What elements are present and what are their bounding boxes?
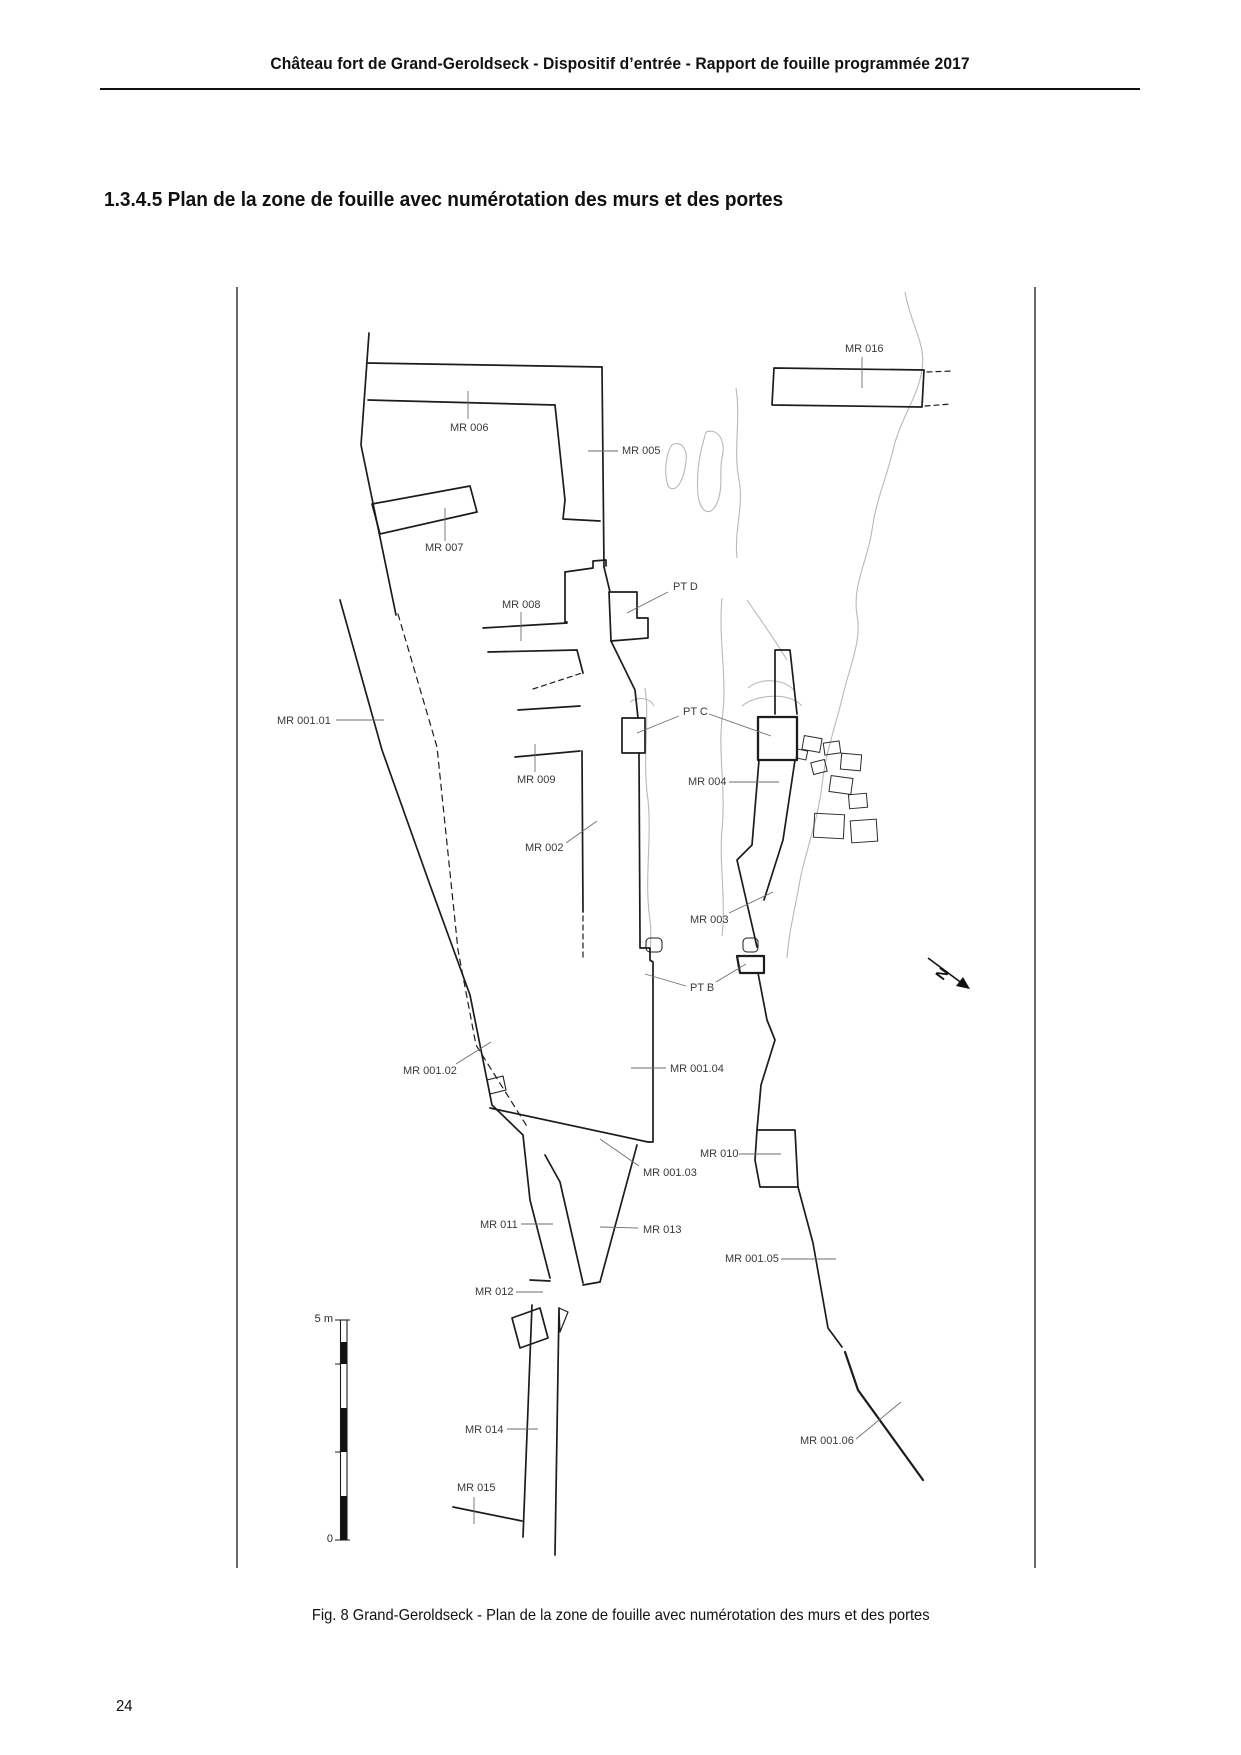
label-mr-012: MR 012 bbox=[475, 1286, 514, 1298]
door-pt-d bbox=[609, 592, 648, 641]
wall-mr-001-01-lower bbox=[340, 600, 550, 1278]
label-mr-008: MR 008 bbox=[502, 599, 541, 611]
label-mr-001-04: MR 001.04 bbox=[670, 1063, 724, 1075]
label-mr-002: MR 002 bbox=[525, 842, 564, 854]
wall-mr-014 bbox=[523, 1305, 559, 1555]
label-pt-d: PT D bbox=[673, 581, 698, 593]
wall-mr-015 bbox=[453, 1507, 522, 1521]
figure-caption: Fig. 8 Grand-Geroldseck - Plan de la zon… bbox=[0, 1607, 1241, 1625]
figure-borders bbox=[237, 287, 1035, 1568]
label-mr-003: MR 003 bbox=[690, 914, 729, 926]
page-number: 24 bbox=[116, 1698, 134, 1716]
label-mr-007: MR 007 bbox=[425, 542, 464, 554]
door-pt-b-right-jamb bbox=[737, 956, 764, 973]
excavation-plan-figure: MR 016 MR 006 MR 005 MR 007 MR 008 PT D … bbox=[0, 0, 1241, 1755]
scale-zero-label: 0 bbox=[327, 1533, 333, 1545]
label-mr-011: MR 011 bbox=[480, 1219, 518, 1231]
wall-mr-016 bbox=[772, 368, 924, 407]
wall-mr-001-02-dashed bbox=[398, 614, 528, 1128]
wall-mr-005 bbox=[602, 367, 604, 567]
label-pt-c: PT C bbox=[683, 706, 708, 718]
label-mr-001-06: MR 001.06 bbox=[800, 1435, 854, 1447]
wall-mr-013 bbox=[600, 1145, 637, 1282]
label-mr-006: MR 006 bbox=[450, 422, 489, 434]
wall-lines bbox=[340, 333, 953, 1555]
north-arrow: N bbox=[928, 958, 970, 989]
scale-bar: 5 m 0 bbox=[315, 1313, 350, 1545]
wall-mr-007 bbox=[372, 486, 477, 534]
label-mr-001-05: MR 001.05 bbox=[725, 1253, 779, 1265]
label-mr-016: MR 016 bbox=[845, 343, 884, 355]
door-pt-c-right-jamb bbox=[758, 717, 797, 760]
report-page: Château fort de Grand-Geroldseck - Dispo… bbox=[0, 0, 1241, 1755]
scale-top-label: 5 m bbox=[315, 1313, 333, 1325]
door-pt-c-left-jamb bbox=[622, 718, 645, 753]
wall-mr-008 bbox=[483, 623, 583, 710]
leader-lines bbox=[336, 357, 901, 1524]
label-mr-005: MR 005 bbox=[622, 445, 661, 457]
wall-mr-003 bbox=[757, 973, 775, 1130]
wall-mr-006 bbox=[368, 363, 602, 405]
label-mr-014: MR 014 bbox=[465, 1424, 504, 1436]
label-mr-015: MR 015 bbox=[457, 1482, 496, 1494]
label-mr-009: MR 009 bbox=[517, 774, 556, 786]
label-pt-b: PT B bbox=[690, 982, 714, 994]
label-mr-010: MR 010 bbox=[700, 1148, 739, 1160]
label-mr-013: MR 013 bbox=[643, 1224, 682, 1236]
wall-mr-001-05 bbox=[798, 1187, 842, 1347]
label-mr-001-02: MR 001.02 bbox=[403, 1065, 457, 1077]
wall-mr-009 bbox=[515, 751, 580, 757]
label-mr-001-03: MR 001.03 bbox=[643, 1167, 697, 1179]
wall-mr-010 bbox=[755, 1130, 798, 1187]
wall-mr-011 bbox=[530, 1155, 600, 1285]
wall-mr-001-01-upper bbox=[361, 333, 396, 615]
rubble-stones bbox=[796, 736, 878, 843]
north-arrow-letter: N bbox=[931, 964, 951, 983]
label-mr-004: MR 004 bbox=[688, 776, 727, 788]
label-mr-001-01: MR 001.01 bbox=[277, 715, 331, 727]
